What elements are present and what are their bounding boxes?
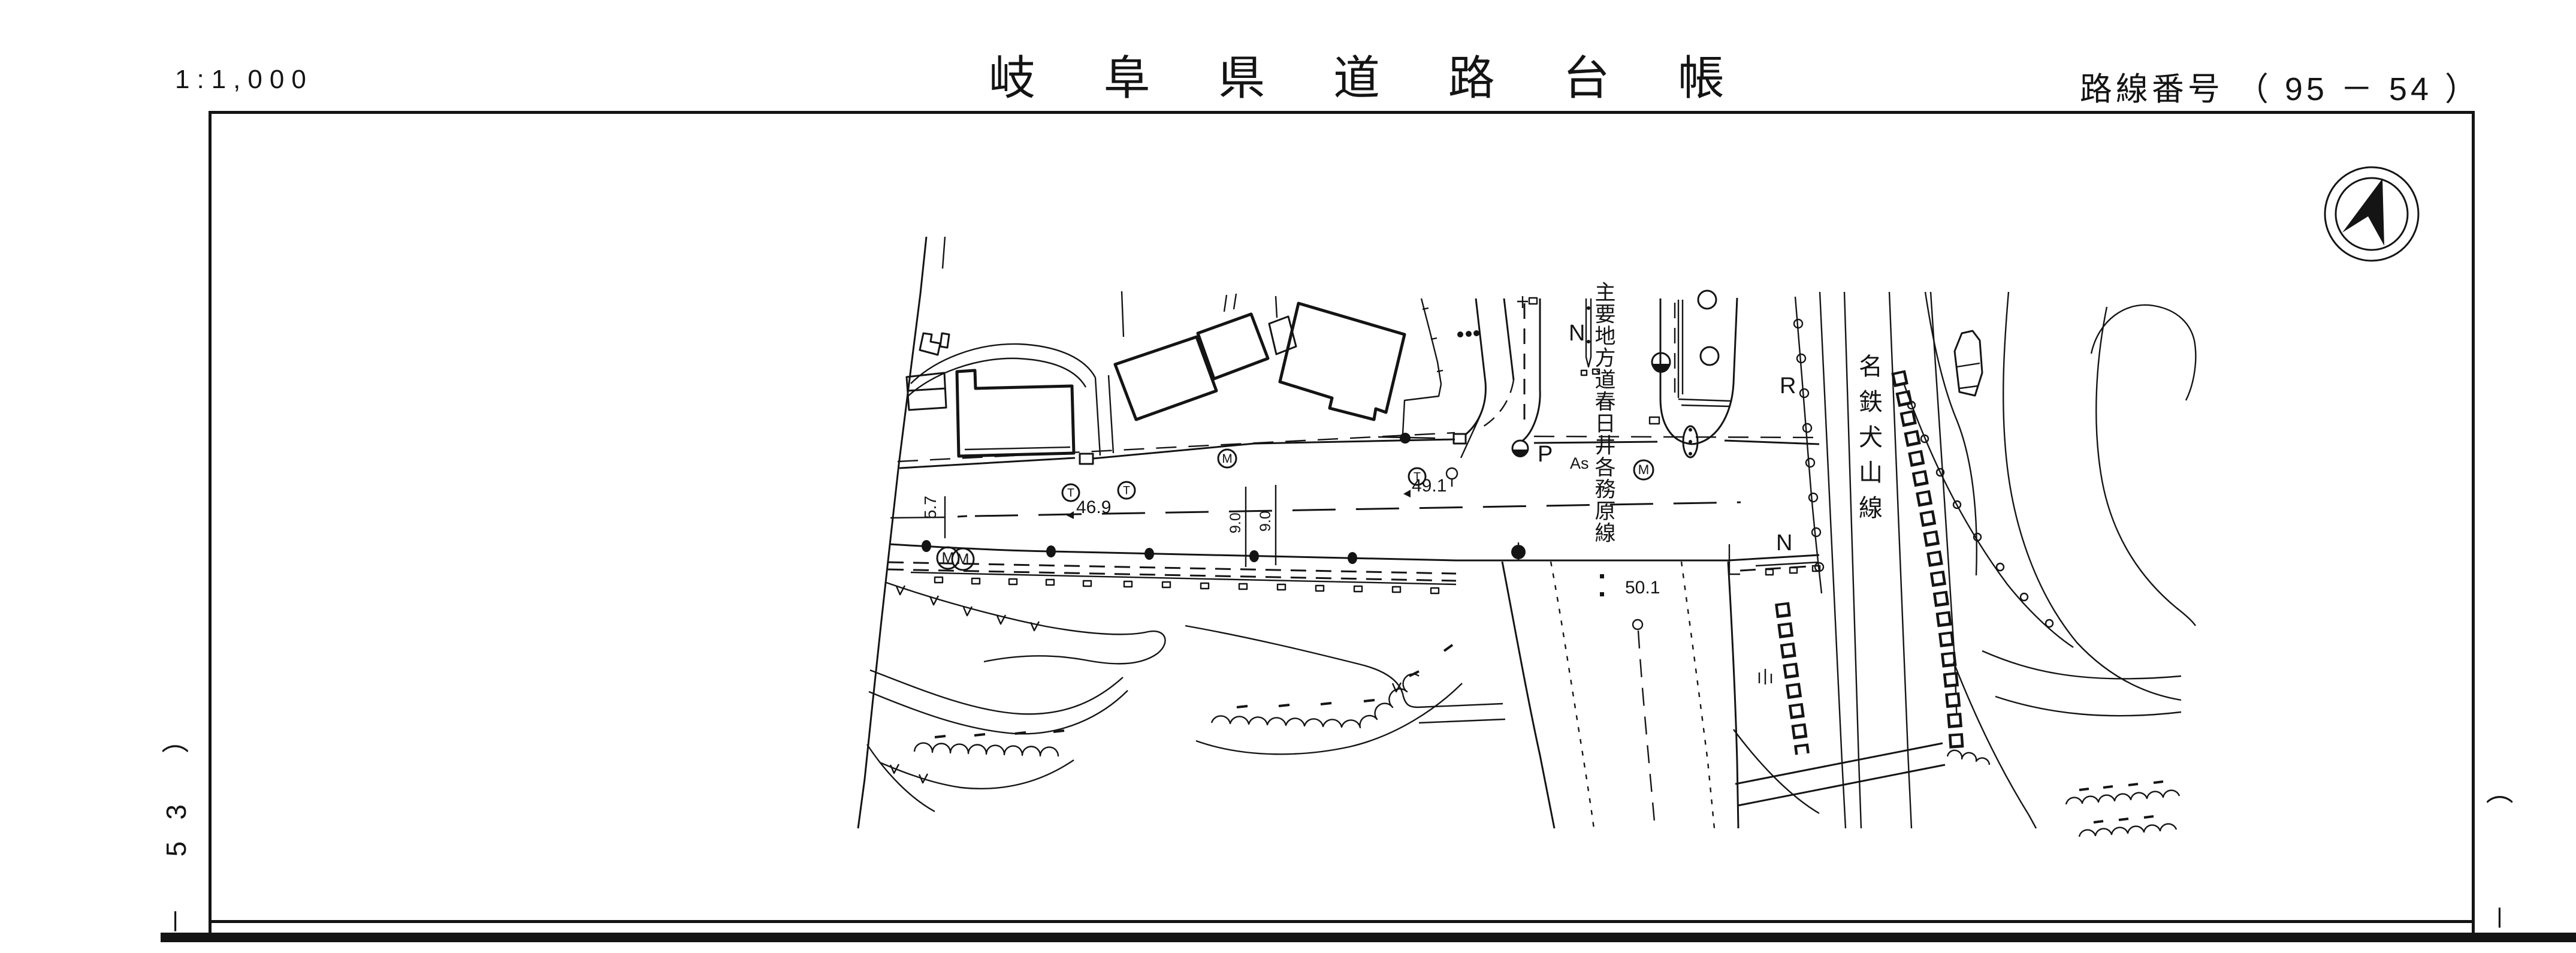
road-ledger-sheet: { "colors": { "ink": "#141414", "paper":… (0, 0, 2576, 942)
map-label: 46.9 (1076, 497, 1111, 517)
circled-symbol-letter: M (1222, 452, 1233, 466)
main-road (888, 433, 1819, 596)
map-label: 50.1 (1625, 578, 1660, 598)
vegetation-rows-southeast (1947, 750, 2179, 837)
north-arrow-icon (2325, 167, 2418, 261)
railway-lines (1735, 292, 1957, 828)
circled-symbol-letter: T (1067, 486, 1074, 499)
circled-symbol-letter: T (1123, 484, 1130, 497)
map-label: R (1780, 373, 1796, 399)
map-label: P (1538, 442, 1553, 467)
contour-lines (1925, 292, 2196, 828)
buildings (957, 291, 1405, 456)
south-road (1502, 562, 1738, 828)
boundary-fences (1759, 297, 2073, 684)
sheet-boundary-line (858, 237, 945, 828)
map-label: 9.0 (1257, 511, 1274, 532)
terrain-southwest (867, 583, 1819, 813)
vertical-name: 名鉄犬山線 (1859, 354, 1883, 521)
map-vertical-names: 主要地方道春日井各務原線名鉄犬山線 (1594, 281, 1883, 545)
map-label: 5.7 (921, 496, 940, 519)
map-drawing: 46.949.150.15.79.09.0NPAsRN MMMMTTT 主要地方… (0, 0, 2576, 942)
circled-symbol-letter: T (1414, 470, 1421, 483)
slope-structure (1955, 331, 1982, 396)
vertical-name: 主要地方道春日井各務原線 (1594, 281, 1615, 545)
map-label: N (1569, 321, 1585, 346)
circled-symbol-letter: M (957, 551, 970, 568)
traffic-island (1650, 291, 1737, 457)
map-label: N (1776, 530, 1792, 556)
map-label: As (1570, 454, 1589, 472)
nw-lane (907, 333, 1113, 456)
map-label: 9.0 (1227, 512, 1244, 533)
circled-symbol-letter: M (1638, 462, 1650, 477)
